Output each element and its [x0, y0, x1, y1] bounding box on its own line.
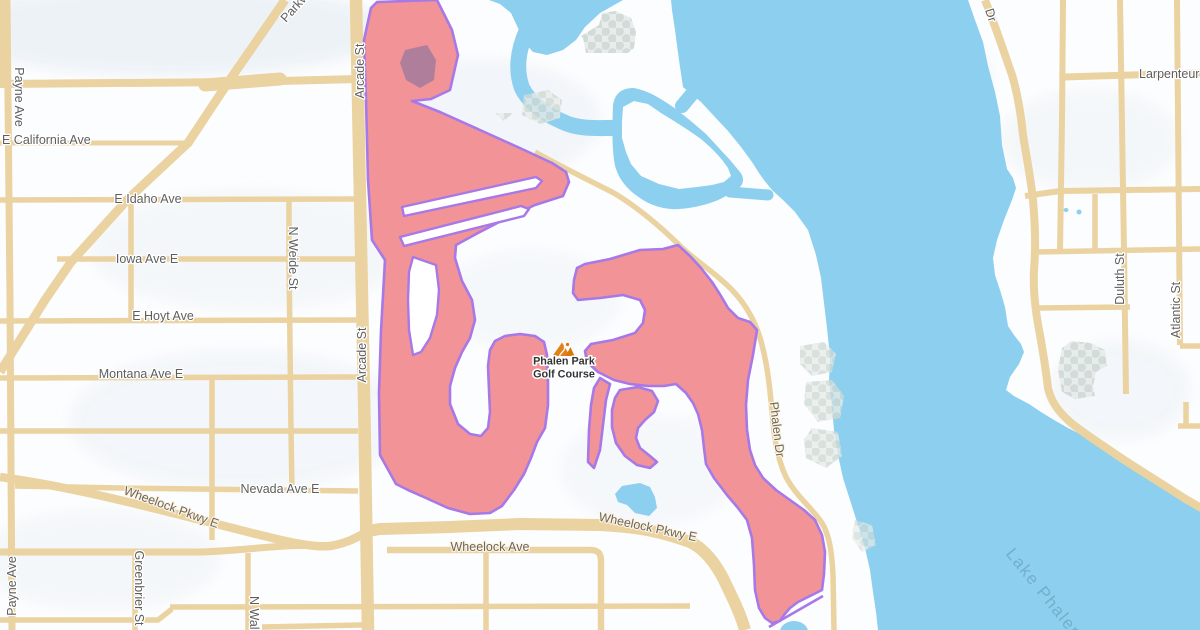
svg-text:Golf Course: Golf Course: [533, 369, 595, 381]
svg-text:Wheelock Ave: Wheelock Ave: [451, 540, 530, 554]
svg-text:Larpenteur Ave: Larpenteur Ave: [1139, 67, 1200, 81]
svg-text:Arcade St: Arcade St: [355, 327, 369, 382]
svg-text:N Walsh St: N Walsh St: [247, 596, 261, 630]
svg-text:Payne Ave: Payne Ave: [5, 556, 19, 616]
svg-text:Montana Ave E: Montana Ave E: [99, 367, 184, 381]
svg-text:E Idaho Ave: E Idaho Ave: [114, 192, 181, 206]
svg-text:Payne Ave: Payne Ave: [12, 67, 26, 127]
svg-text:Duluth St: Duluth St: [1113, 253, 1127, 305]
svg-text:Iowa Ave E: Iowa Ave E: [116, 252, 178, 266]
svg-text:Atlantic St: Atlantic St: [1169, 281, 1183, 338]
svg-text:N Weide St: N Weide St: [286, 227, 300, 291]
svg-text:Nevada Ave E: Nevada Ave E: [241, 482, 320, 496]
svg-text:Phalen Park: Phalen Park: [533, 356, 596, 368]
svg-text:E California Ave: E California Ave: [2, 133, 91, 147]
svg-text:E Hoyt Ave: E Hoyt Ave: [132, 309, 194, 323]
svg-text:Greenbrier St: Greenbrier St: [132, 550, 146, 626]
svg-text:Arcade St: Arcade St: [353, 43, 367, 98]
